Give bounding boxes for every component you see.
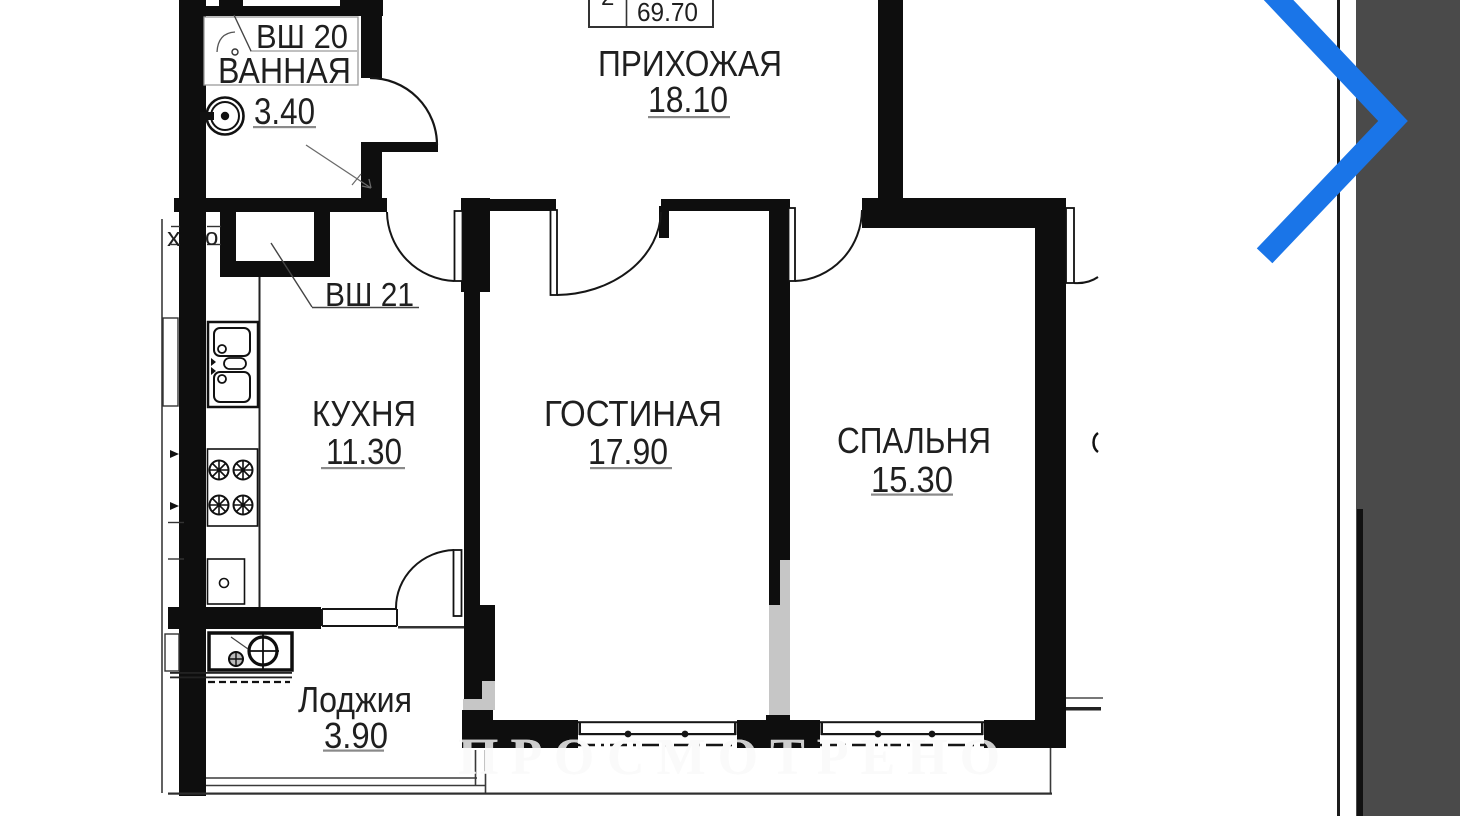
svg-text:х: х xyxy=(167,222,181,252)
svg-text:17.90: 17.90 xyxy=(588,431,668,472)
svg-text:ПРИХОЖАЯ: ПРИХОЖАЯ xyxy=(598,43,782,84)
svg-text:Лоджия: Лоджия xyxy=(298,679,412,720)
svg-text:о: о xyxy=(205,224,218,251)
svg-text:СПАЛЬНЯ: СПАЛЬНЯ xyxy=(837,420,991,461)
svg-text:ГОСТИНАЯ: ГОСТИНАЯ xyxy=(544,393,722,434)
svg-text:КУХНЯ: КУХНЯ xyxy=(312,393,416,434)
svg-text:11.30: 11.30 xyxy=(326,431,402,472)
svg-text:18.10: 18.10 xyxy=(648,79,728,120)
svg-text:3.40: 3.40 xyxy=(254,91,315,132)
svg-text:ВАННАЯ: ВАННАЯ xyxy=(218,50,351,91)
svg-text:2: 2 xyxy=(601,0,614,11)
svg-text:69.70: 69.70 xyxy=(637,0,698,27)
